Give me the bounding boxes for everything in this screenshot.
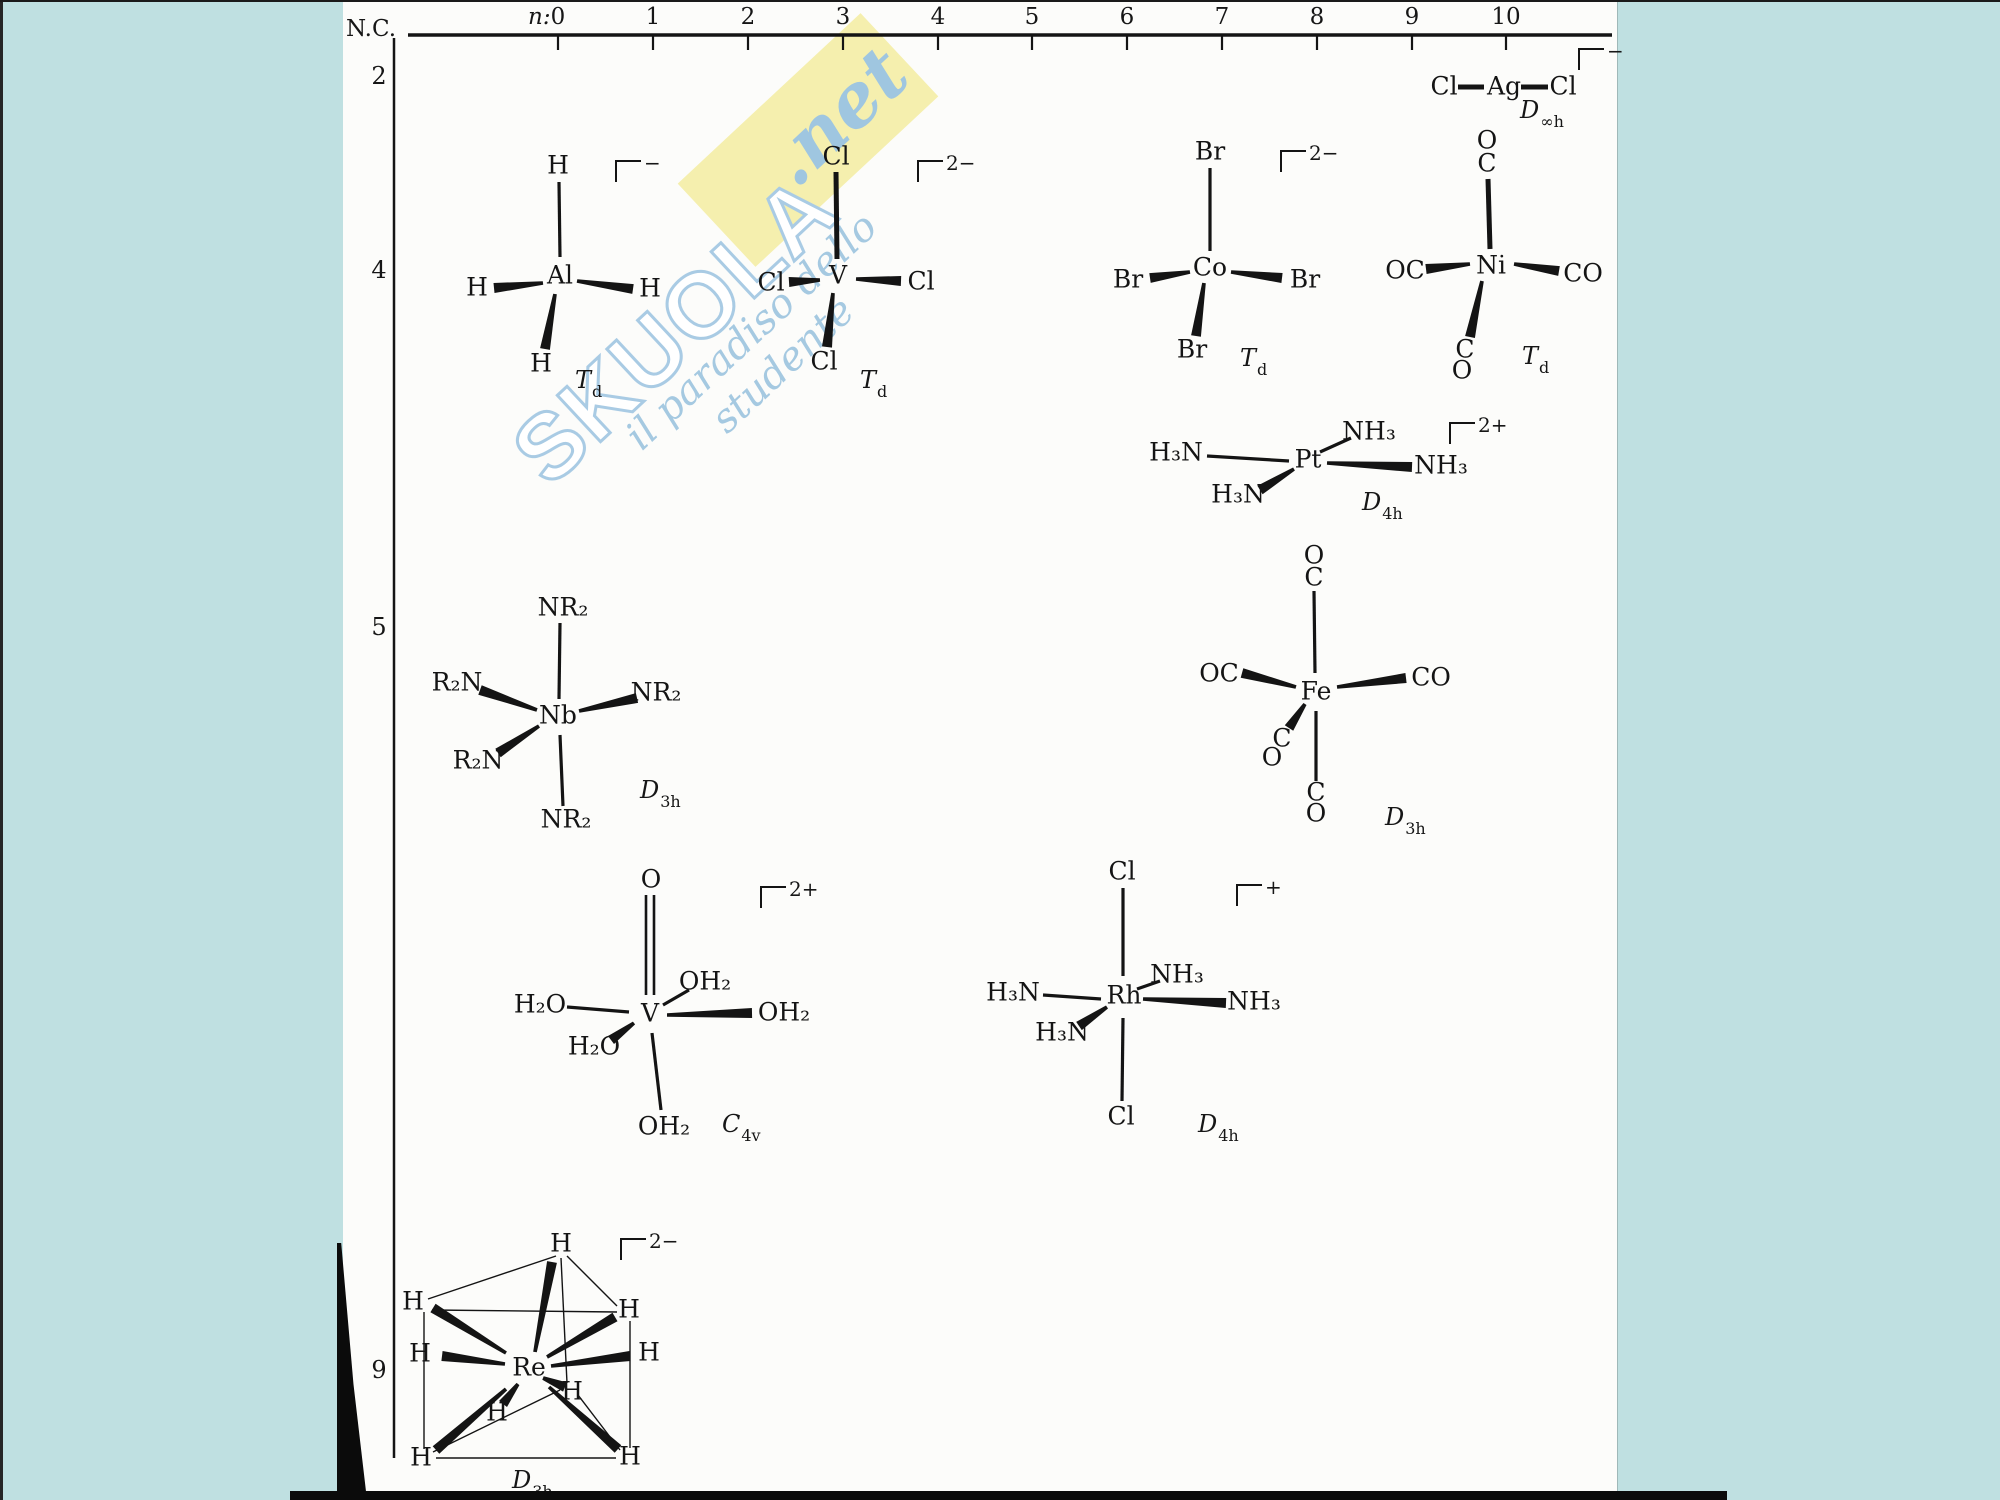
atom-label-oxo-pentaaqua-vanadium: O <box>641 865 662 894</box>
bond-wedge-nickel-tetracarbonyl <box>1425 262 1470 274</box>
scan-edge-left <box>0 0 3 1500</box>
n-tick-label-3: 3 <box>836 6 851 29</box>
atom-label-tetrahydridoaluminate: Al <box>546 261 573 290</box>
bond-wedge-tetrabromocobaltate <box>1149 270 1190 283</box>
atom-label-pentakis-dialkylamido-niobium: Nb <box>539 701 577 730</box>
atom-label-iron-pentacarbonyl: OC <box>1199 659 1239 688</box>
symmetry-main: D <box>1520 96 1539 124</box>
atom-label-iron-pentacarbonyl: CO <box>1411 663 1451 692</box>
n-tick-label-8: 8 <box>1310 6 1325 29</box>
symmetry-subscript: 3h <box>660 792 680 811</box>
atom-label-iron-pentacarbonyl: Fe <box>1301 677 1332 706</box>
atom-label-pentakis-dialkylamido-niobium: R₂N <box>432 668 483 697</box>
bond-wedge-tetrachlorovanadate <box>856 276 901 286</box>
bond-wedge-tetrabromocobaltate <box>1191 283 1206 337</box>
atom-label-oxo-pentaaqua-vanadium: OH₂ <box>679 967 731 996</box>
symmetry-label-tetrabromocobaltate: Td <box>1240 346 1266 375</box>
bond-wedge-nonahydridorhenate <box>546 1313 617 1359</box>
symmetry-label-tetrachlorovanadate: Td <box>860 368 886 397</box>
bond-dichloro-tetraammine-rhodium <box>1122 1018 1123 1101</box>
atom-label-tetraammineplatinum: NH₃ <box>1414 451 1468 480</box>
atom-label-tetrabromocobaltate: Br <box>1113 265 1143 294</box>
bracket-corner <box>620 1238 646 1260</box>
bracket-corner <box>1449 422 1475 444</box>
atom-label-dichloro-tetraammine-rhodium: Rh <box>1107 981 1142 1010</box>
atom-label-tetrachlorovanadate: Cl <box>907 267 934 296</box>
charge-bracket-dichloroargentate: − <box>1578 48 1624 70</box>
atom-label-nonahydridorhenate: H <box>410 1443 432 1472</box>
atom-label-nonahydridorhenate: Re <box>512 1353 546 1382</box>
charge-value: − <box>1607 41 1624 61</box>
symmetry-main: D <box>1385 803 1404 831</box>
atom-label-pentakis-dialkylamido-niobium: R₂N <box>453 746 504 775</box>
symmetry-label-dichloroargentate: D∞h <box>1520 98 1563 127</box>
bond-wedge-nonahydridorhenate <box>548 1386 622 1453</box>
symmetry-subscript: ∞h <box>1540 112 1564 131</box>
atom-label-dichloro-tetraammine-rhodium: NH₃ <box>1227 987 1281 1016</box>
bond-tetraammineplatinum <box>1207 456 1289 461</box>
charge-value: 2− <box>946 153 975 173</box>
atom-label-tetrachlorovanadate: Cl <box>810 347 837 376</box>
atom-label-oxo-pentaaqua-vanadium: OH₂ <box>758 998 810 1027</box>
atom-label-tetrabromocobaltate: Co <box>1193 253 1227 282</box>
atom-label-tetrachlorovanadate: Cl <box>822 142 849 171</box>
scan-edge-top <box>0 0 2000 2</box>
symmetry-label-tetrahydridoaluminate: Td <box>575 368 601 397</box>
bond-wedge-iron-pentacarbonyl <box>1337 673 1407 689</box>
symmetry-subscript: d <box>592 382 602 401</box>
atom-label-tetrahydridoaluminate: H <box>466 273 488 302</box>
bond-tetrahydridoaluminate <box>559 182 560 257</box>
atom-label-pentakis-dialkylamido-niobium: NR₂ <box>541 805 592 834</box>
n-tick-label-10: 10 <box>1491 6 1520 29</box>
bracket-corner <box>615 160 641 182</box>
bond-wedge-nickel-tetracarbonyl <box>1465 281 1484 338</box>
charge-bracket-dichloro-tetraammine-rhodium: + <box>1236 884 1282 906</box>
symmetry-subscript: 4h <box>1382 504 1402 523</box>
bracket-corner <box>1236 884 1262 906</box>
symmetry-subscript: 3h <box>1405 819 1425 838</box>
charge-value: 2+ <box>789 879 818 899</box>
atom-label-tetraammineplatinum: NH₃ <box>1342 417 1396 446</box>
atom-label-tetraammineplatinum: H₃N <box>1211 480 1265 509</box>
symmetry-main: T <box>575 366 591 394</box>
charge-bracket-nonahydridorhenate: 2− <box>620 1238 678 1260</box>
bond-wedge-iron-pentacarbonyl <box>1241 668 1297 689</box>
atom-label-dichloroargentate: Cl <box>1430 72 1457 101</box>
bond-wedge-dichloro-tetraammine-rhodium <box>1143 997 1226 1008</box>
atom-label-dichloro-tetraammine-rhodium: Cl <box>1107 1102 1134 1131</box>
atom-label-pentakis-dialkylamido-niobium: NR₂ <box>631 678 682 707</box>
bond-iron-pentacarbonyl <box>1314 591 1315 673</box>
symmetry-main: T <box>860 366 876 394</box>
nc-row-label-4: 4 <box>371 258 386 282</box>
atom-label-dichloro-tetraammine-rhodium: NH₃ <box>1150 960 1204 989</box>
symmetry-label-tetraammineplatinum: D4h <box>1362 490 1402 519</box>
symmetry-label-pentakis-dialkylamido-niobium: D3h <box>640 778 680 807</box>
n-tick-label-5: 5 <box>1025 6 1040 29</box>
bond-wedge-nonahydridorhenate <box>551 1351 631 1368</box>
atom-label-tetraammineplatinum: Pt <box>1295 445 1322 474</box>
bond-wedge-tetraammineplatinum <box>1327 461 1412 472</box>
structure-diagram-layer: ClAgClAlHHHHVClClClClCoBrBrBrBrOCNiOCCOC… <box>0 0 2000 1500</box>
atom-label-nonahydridorhenate: H <box>550 1229 572 1258</box>
atom-label-dichloroargentate: Cl <box>1549 72 1576 101</box>
n-tick-label-1: 1 <box>646 6 661 29</box>
n-axis-label: n: <box>528 6 551 29</box>
symmetry-label-dichloro-tetraammine-rhodium: D4h <box>1198 1112 1238 1141</box>
bond-oxo-pentaaqua-vanadium <box>652 1033 661 1110</box>
symmetry-subscript: 4h <box>1218 1126 1238 1145</box>
nc-row-label-2: 2 <box>371 64 386 88</box>
bond-wedge-pentakis-dialkylamido-niobium <box>478 685 537 711</box>
prism-edge-nonahydridorhenate <box>567 1256 617 1306</box>
atom-label-tetrahydridoaluminate: H <box>639 274 661 303</box>
n-tick-label-9: 9 <box>1405 6 1420 29</box>
bond-oxo-pentaaqua-vanadium <box>567 1007 629 1012</box>
nc-axis-label: N.C. <box>346 18 396 41</box>
atom-label-tetrabromocobaltate: Br <box>1195 137 1225 166</box>
charge-bracket-tetrahydridoaluminate: − <box>615 160 661 182</box>
n-tick-label-0: 0 <box>551 6 566 29</box>
charge-value: − <box>644 153 661 173</box>
atom-label-dichloro-tetraammine-rhodium: H₃N <box>1035 1018 1089 1047</box>
nc-row-label-5: 5 <box>371 615 386 639</box>
bracket-corner <box>917 160 943 182</box>
atom-label-nonahydridorhenate: H <box>561 1377 583 1406</box>
bond-wedge-tetrabromocobaltate <box>1231 270 1283 283</box>
symmetry-main: T <box>1240 344 1256 372</box>
atom-label-dichloroargentate: Ag <box>1486 72 1521 101</box>
symmetry-subscript: d <box>1539 358 1549 377</box>
atom-label-oxo-pentaaqua-vanadium: H₂O <box>568 1032 620 1061</box>
charge-bracket-tetrachlorovanadate: 2− <box>917 160 975 182</box>
bracket-corner <box>760 886 786 908</box>
bond-wedge-tetrachlorovanadate <box>789 277 820 287</box>
bond-wedge-pentakis-dialkylamido-niobium <box>579 693 639 713</box>
atom-label-nonahydridorhenate: H <box>409 1339 431 1368</box>
n-tick-label-2: 2 <box>741 6 756 29</box>
atom-label-tetrahydridoaluminate: H <box>530 349 552 378</box>
n-tick-label-6: 6 <box>1120 6 1135 29</box>
charge-value: 2+ <box>1478 415 1507 435</box>
atom-label-tetrabromocobaltate: Br <box>1290 265 1320 294</box>
bond-wedge-tetrachlorovanadate <box>822 293 835 348</box>
atom-label-oxo-pentaaqua-vanadium: V <box>640 999 660 1028</box>
atom-label-tetraammineplatinum: H₃N <box>1149 438 1203 467</box>
bracket-corner <box>1280 150 1306 172</box>
atom-label-iron-pentacarbonyl: C <box>1304 563 1323 592</box>
atom-label-nonahydridorhenate: H <box>618 1295 640 1324</box>
n-tick-label-7: 7 <box>1215 6 1230 29</box>
atom-label-nonahydridorhenate: H <box>619 1442 641 1471</box>
charge-bracket-oxo-pentaaqua-vanadium: 2+ <box>760 886 818 908</box>
atom-label-dichloro-tetraammine-rhodium: Cl <box>1108 857 1135 886</box>
bond-pentakis-dialkylamido-niobium <box>560 735 563 806</box>
atom-label-tetrahydridoaluminate: H <box>547 151 569 180</box>
atom-label-nonahydridorhenate: H <box>486 1398 508 1427</box>
symmetry-subscript: 4v <box>741 1126 760 1145</box>
atom-label-nonahydridorhenate: H <box>402 1287 424 1316</box>
scan-artifact-bottom-bar <box>290 1491 1727 1500</box>
symmetry-main: D <box>640 776 659 804</box>
atom-label-nonahydridorhenate: H <box>638 1338 660 1367</box>
prism-edge-nonahydridorhenate <box>432 1310 617 1312</box>
n-tick-label-4: 4 <box>931 6 946 29</box>
bond-wedge-nickel-tetracarbonyl <box>1514 262 1560 276</box>
charge-bracket-tetraammineplatinum: 2+ <box>1449 422 1507 444</box>
bond-wedge-nonahydridorhenate <box>441 1351 505 1366</box>
atom-label-oxo-pentaaqua-vanadium: OH₂ <box>638 1112 690 1141</box>
atom-label-tetrachlorovanadate: V <box>828 261 848 290</box>
bond-wedge-tetrahydridoaluminate <box>577 279 634 294</box>
bond-nickel-tetracarbonyl <box>1488 179 1490 249</box>
atom-label-nickel-tetracarbonyl: OC <box>1385 256 1425 285</box>
bond-pentakis-dialkylamido-niobium <box>559 623 560 699</box>
symmetry-main: T <box>1522 342 1538 370</box>
bond-dichloro-tetraammine-rhodium <box>1043 995 1101 999</box>
atom-label-pentakis-dialkylamido-niobium: NR₂ <box>538 593 589 622</box>
scanned-page: .net SKUOLA il paradiso dello studente C… <box>0 0 2000 1500</box>
prism-edge-nonahydridorhenate <box>428 1256 556 1299</box>
symmetry-subscript: d <box>877 382 887 401</box>
atom-label-nickel-tetracarbonyl: O <box>1452 356 1473 385</box>
symmetry-main: D <box>512 1466 531 1494</box>
symmetry-main: D <box>1362 488 1381 516</box>
symmetry-label-nickel-tetracarbonyl: Td <box>1522 344 1548 373</box>
atom-label-tetrabromocobaltate: Br <box>1177 335 1207 364</box>
bond-wedge-tetrahydridoaluminate <box>540 294 557 350</box>
atom-label-tetrachlorovanadate: Cl <box>757 268 784 297</box>
atom-label-iron-pentacarbonyl: O <box>1306 799 1327 828</box>
bond-wedge-oxo-pentaaqua-vanadium <box>667 1008 752 1018</box>
atom-label-iron-pentacarbonyl: O <box>1262 743 1283 772</box>
atom-label-nickel-tetracarbonyl: CO <box>1563 259 1603 288</box>
symmetry-main: D <box>1198 1110 1217 1138</box>
charge-bracket-tetrabromocobaltate: 2− <box>1280 150 1338 172</box>
symmetry-label-iron-pentacarbonyl: D3h <box>1385 805 1425 834</box>
atom-label-dichloro-tetraammine-rhodium: H₃N <box>986 978 1040 1007</box>
charge-value: 2− <box>1309 143 1338 163</box>
bracket-corner <box>1578 48 1604 70</box>
symmetry-label-oxo-pentaaqua-vanadium: C4v <box>722 1112 760 1141</box>
bond-wedge-tetrahydridoaluminate <box>494 281 544 293</box>
atom-label-nickel-tetracarbonyl: C <box>1477 149 1496 178</box>
nc-row-label-9: 9 <box>371 1358 386 1382</box>
charge-value: + <box>1265 877 1282 897</box>
bond-tetrachlorovanadate <box>836 172 837 259</box>
atom-label-oxo-pentaaqua-vanadium: H₂O <box>514 990 566 1019</box>
charge-value: 2− <box>649 1231 678 1251</box>
symmetry-main: C <box>722 1110 740 1138</box>
bond-wedge-nonahydridorhenate <box>533 1261 557 1352</box>
atom-label-nickel-tetracarbonyl: Ni <box>1476 251 1506 280</box>
symmetry-subscript: d <box>1257 360 1267 379</box>
